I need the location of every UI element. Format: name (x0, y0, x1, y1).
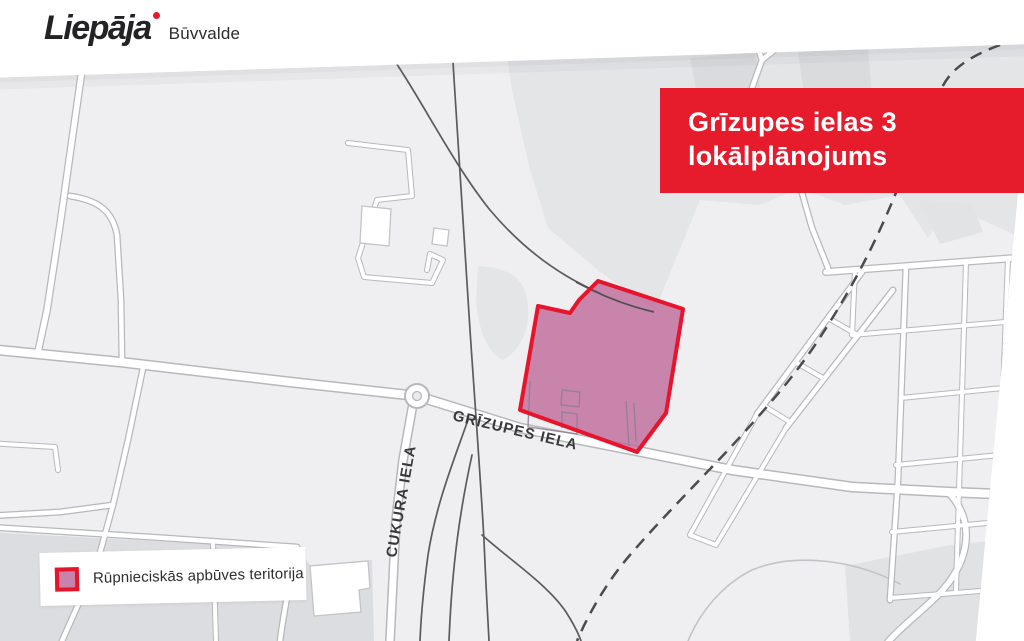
logo-wordmark: Liepāja (44, 11, 151, 45)
title-banner: Grīzupes ielas 3 lokālplānojums (660, 88, 1024, 193)
legend-zone-label: Rūpnieciskās apbūves teritorija (93, 565, 304, 587)
legend: Rūpnieciskās apbūves teritorija (39, 547, 306, 606)
banner-title-line2: lokālplānojums (688, 139, 1024, 173)
roundabout (404, 383, 430, 409)
logo-dot-icon (153, 12, 160, 19)
banner-title-line1: Grīzupes ielas 3 (688, 105, 1024, 139)
legend-zone-swatch (55, 567, 80, 592)
logo-subtitle: Būvvalde (169, 24, 241, 44)
logo: Liepāja Būvvalde (44, 11, 240, 45)
logo-text: Liepāja (44, 9, 151, 47)
